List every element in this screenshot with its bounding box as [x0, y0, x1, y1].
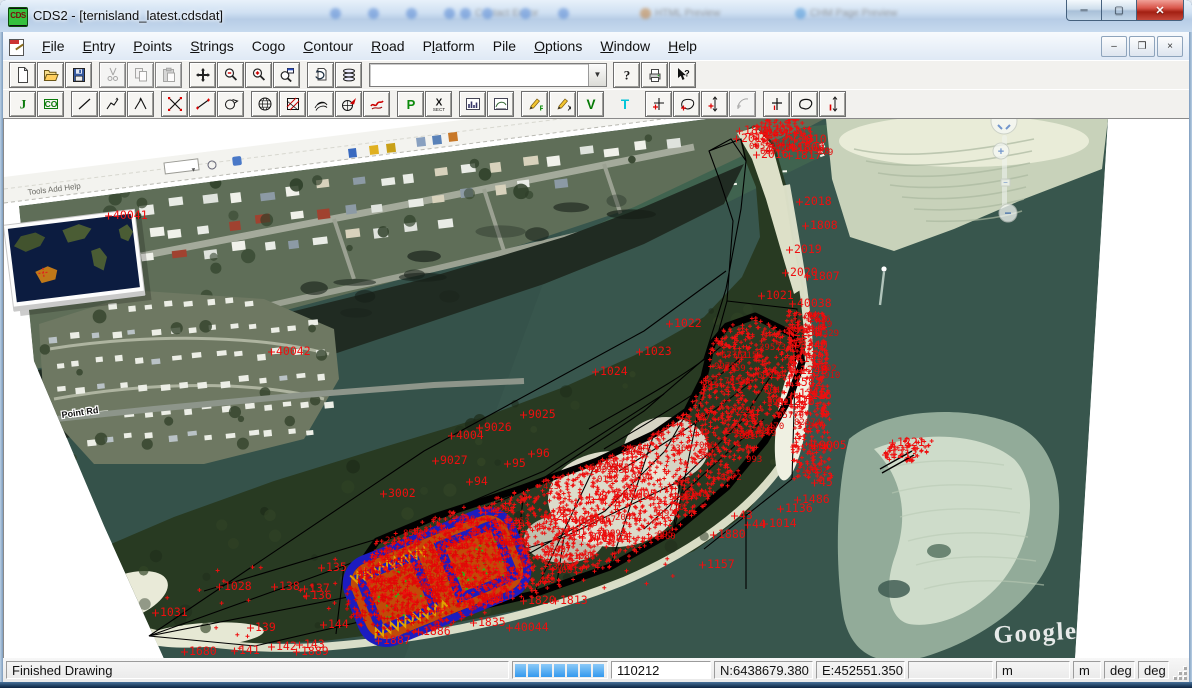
zoom-window-icon [279, 67, 295, 83]
svg-text:0572: 0572 [720, 473, 742, 483]
resize-grip[interactable] [1171, 664, 1189, 682]
new-icon [15, 67, 31, 83]
svg-text:68056: 68056 [757, 371, 784, 381]
svg-text:CO: CO [44, 99, 57, 109]
survey-point-label: 1024 [600, 364, 628, 378]
mdi-minimize-button[interactable]: – [1101, 36, 1127, 57]
survey-point-label: 1023 [644, 344, 672, 358]
svg-text:−: − [1003, 178, 1008, 187]
svg-text:23667: 23667 [670, 444, 697, 454]
survey-point-label: 2011 [772, 123, 800, 137]
x-sect-icon: XSECT [431, 96, 447, 112]
survey-point-label: 1880 [718, 527, 746, 541]
app-icon: CDS [8, 7, 28, 27]
unit-panel-m: m [1073, 661, 1101, 679]
status-message: Finished Drawing [6, 661, 509, 679]
aerial-imagery: Google ™Point Rd + − − [19, 119, 1108, 659]
freehand-icon [369, 96, 385, 112]
survey-point-label: 1835 [478, 615, 506, 629]
t-cyan-icon: T [617, 96, 633, 112]
pt-vert-icon [707, 96, 723, 112]
google-watermark: Google [993, 618, 1078, 649]
survey-point-label: 3002 [388, 486, 416, 500]
menu-points[interactable]: Points [124, 34, 181, 58]
svg-text:J: J [19, 96, 26, 111]
svg-text:57697: 57697 [597, 460, 624, 470]
polyline-icon [105, 96, 121, 112]
menu-items: FileEntryPointsStringsCogoContourRoadPla… [33, 34, 706, 58]
progress-segment [515, 664, 526, 677]
help-icon: ? [619, 67, 635, 83]
survey-point-label: 1889 [301, 644, 329, 658]
northing-readout: N:6438679.380 [714, 661, 813, 679]
survey-point-label: 1022 [674, 316, 702, 330]
circle-arrow-button[interactable] [217, 91, 244, 117]
survey-point-label: 94 [474, 474, 488, 488]
menu-window[interactable]: Window [591, 34, 659, 58]
vert2-icon [825, 96, 841, 112]
svg-text:804: 804 [764, 386, 780, 396]
survey-point-label: 1216 [787, 394, 815, 408]
svg-text:3215: 3215 [373, 549, 395, 559]
zoom-out-icon [223, 67, 239, 83]
svg-text:11086: 11086 [568, 552, 595, 562]
pt-balloon-button[interactable] [673, 91, 700, 117]
zoom-window-button[interactable] [273, 62, 300, 88]
window-bottom-border [0, 682, 1192, 688]
svg-text:78554: 78554 [724, 377, 751, 387]
survey-point-label: 2018 [804, 194, 832, 208]
cogo-co-button[interactable]: CO [37, 91, 64, 117]
layer-combobox[interactable]: ▼ [369, 63, 607, 87]
unit-panel-deg-1: deg [1104, 661, 1135, 679]
svg-text:+: + [998, 146, 1004, 158]
scatter-x-button[interactable] [161, 91, 188, 117]
survey-point-label: 144 [328, 617, 349, 631]
poly2-icon [797, 96, 813, 112]
menu-pile[interactable]: Pile [484, 34, 525, 58]
svg-text:2948: 2948 [686, 490, 708, 500]
survey-point-label: 40042 [276, 344, 311, 358]
survey-point-label: 1014 [769, 516, 797, 530]
save-button[interactable] [65, 62, 92, 88]
survey-point-label: 136 [311, 588, 332, 602]
svg-text:4829: 4829 [488, 506, 510, 516]
survey-point-label: 139 [255, 620, 276, 634]
svg-text:9012: 9012 [461, 581, 483, 591]
svg-text:247: 247 [396, 564, 412, 574]
menu-strings[interactable]: Strings [181, 34, 243, 58]
survey-point-label: 3340 [800, 338, 828, 352]
svg-text:5992: 5992 [653, 509, 675, 519]
p-green-icon: P [403, 96, 419, 112]
survey-point-label: 1886 [423, 624, 451, 638]
poly2-button[interactable] [791, 91, 818, 117]
svg-text:242: 242 [726, 427, 742, 437]
progress-segment [593, 664, 604, 677]
survey-point-label: 135 [326, 560, 347, 574]
svg-text:835: 835 [438, 575, 454, 585]
context-help-icon: ? [675, 67, 691, 83]
globe-arrow-button[interactable] [335, 91, 362, 117]
menu-help[interactable]: Help [659, 34, 706, 58]
survey-point-label: 141 [239, 643, 260, 657]
save-icon [71, 67, 87, 83]
svg-text:9973: 9973 [714, 362, 736, 372]
svg-text:6704: 6704 [393, 604, 415, 614]
svg-text:854: 854 [403, 529, 419, 539]
svg-text:X: X [567, 103, 570, 112]
paste-button[interactable] [155, 62, 182, 88]
new-button[interactable] [9, 62, 36, 88]
svg-text:082: 082 [804, 312, 820, 322]
survey-point-label: 58 [594, 489, 608, 503]
chart-icon [465, 96, 481, 112]
svg-text:072: 072 [700, 412, 716, 422]
help-button[interactable]: ? [613, 62, 640, 88]
layers-icon [341, 67, 357, 83]
pan-icon [195, 67, 211, 83]
progress-segment [580, 664, 591, 677]
svg-text:P: P [406, 97, 415, 112]
section-icon [493, 96, 509, 112]
pt-vert-button[interactable] [701, 91, 728, 117]
progress-segment [528, 664, 539, 677]
point-id-field[interactable]: 110212 [611, 661, 711, 679]
copy-icon [133, 67, 149, 83]
survey-point-label: 40038 [797, 296, 832, 310]
globe-button[interactable] [251, 91, 278, 117]
menu-file[interactable]: File [33, 34, 74, 58]
survey-point-label: 45 [819, 475, 833, 489]
progress-segment [541, 664, 552, 677]
survey-point-label: 1820 [528, 593, 556, 607]
easting-readout: E:452551.350 [816, 661, 905, 679]
x-sect-button[interactable]: XSECT [425, 91, 452, 117]
zoom-in-icon [251, 67, 267, 83]
svg-text:318: 318 [797, 422, 813, 432]
survey-point-label: 1817 [794, 148, 822, 162]
edit-x-button[interactable]: X [549, 91, 576, 117]
title-bar[interactable]: Contact Editor HTML Preview CHM Page Pre… [0, 0, 1192, 32]
xline-icon [133, 96, 149, 112]
p-green-button[interactable]: P [397, 91, 424, 117]
survey-point-label: 2019 [794, 242, 822, 256]
survey-point-label: 9027 [440, 453, 468, 467]
cad-toolbar: JCOPXSECTPXVT [3, 89, 1189, 119]
svg-text:V: V [586, 97, 595, 112]
cut-icon [105, 67, 121, 83]
svg-text:9894: 9894 [631, 473, 653, 483]
svg-text:20444: 20444 [615, 513, 642, 523]
globe-icon [257, 96, 273, 112]
scatter-x-icon [167, 96, 183, 112]
menu-bar: FileEntryPointsStringsCogoContourRoadPla… [3, 32, 1189, 61]
pt-arc-button[interactable] [729, 91, 756, 117]
svg-text:67761: 67761 [721, 351, 748, 361]
zoom-in-button[interactable] [245, 62, 272, 88]
svg-text:341: 341 [698, 452, 714, 462]
hatch-button[interactable] [279, 91, 306, 117]
svg-text:10813: 10813 [556, 566, 583, 576]
survey-point-label: 1028 [224, 579, 252, 593]
line-icon [77, 96, 93, 112]
open-icon [43, 67, 59, 83]
ghost-taskbar-item: HTML Preview [640, 5, 720, 21]
main-toolbar: ▼?? [3, 60, 1189, 90]
contours-icon [313, 96, 329, 112]
svg-text:149: 149 [760, 429, 776, 439]
svg-text:7395: 7395 [737, 414, 759, 424]
svg-text:3578: 3578 [424, 585, 446, 595]
svg-text:P: P [539, 103, 542, 112]
survey-point-label: 1031 [160, 605, 188, 619]
xline-button[interactable] [127, 91, 154, 117]
polyline-button[interactable] [99, 91, 126, 117]
cogo-co-icon: CO [43, 96, 59, 112]
print-icon [647, 67, 663, 83]
globe-arrow-icon [341, 96, 357, 112]
print-button[interactable] [641, 62, 668, 88]
pt-balloon-icon [679, 96, 695, 112]
survey-point-label: 1005 [587, 530, 615, 544]
svg-text:SECT: SECT [432, 107, 444, 112]
menu-contour[interactable]: Contour [294, 34, 362, 58]
svg-text:64304: 64304 [372, 585, 399, 595]
blank-panel [908, 661, 993, 679]
v-green-icon: V [583, 96, 599, 112]
svg-text:835: 835 [440, 537, 456, 547]
drawing-canvas[interactable]: Google ™Point Rd + − − Tools Add Help ▾ [3, 118, 1190, 659]
svg-text:777: 777 [658, 486, 674, 496]
survey-point-label: 1136 [785, 501, 813, 515]
ghost-icon [640, 8, 651, 19]
survey-point-label: 40036 [571, 513, 606, 527]
cross2-button[interactable] [763, 91, 790, 117]
edit-p-icon: P [527, 96, 543, 112]
close-button[interactable]: ✕ [1136, 0, 1184, 21]
pt-cross-icon [651, 96, 667, 112]
svg-text:39523: 39523 [759, 343, 786, 353]
survey-point-label: 60005 [622, 487, 657, 501]
t-cyan-button[interactable]: T [611, 91, 638, 117]
menu-entry[interactable]: Entry [74, 34, 125, 58]
section-button[interactable] [487, 91, 514, 117]
svg-text:952: 952 [428, 559, 444, 569]
status-bar: Finished Drawing 110212 N:6438679.380 E:… [3, 658, 1189, 682]
overview-map-inset [4, 209, 152, 317]
tape-button[interactable] [189, 91, 216, 117]
svg-text:2360: 2360 [654, 532, 676, 542]
join-j-icon: J [15, 96, 31, 112]
pt-arc-icon [735, 96, 751, 112]
progress-segment [554, 664, 565, 677]
survey-point-label: 9025 [528, 407, 556, 421]
zoom-out-button[interactable] [217, 62, 244, 88]
menu-road[interactable]: Road [362, 34, 413, 58]
window-title: CDS2 - [ternisland_latest.cdsdat] [33, 8, 223, 23]
join-j-button[interactable]: J [9, 91, 36, 117]
vert2-button[interactable] [819, 91, 846, 117]
survey-point-label: 2236 [794, 325, 822, 339]
copy-button[interactable] [127, 62, 154, 88]
edit-p-button[interactable]: P [521, 91, 548, 117]
progress-bar [512, 661, 608, 679]
redraw-button[interactable] [307, 62, 334, 88]
menu-cogo[interactable]: Cogo [243, 34, 295, 58]
ghost-taskbar-item: CHM Page Preview [795, 5, 897, 21]
survey-point-label: 43 [739, 508, 753, 522]
survey-point-label: 1213 [890, 447, 918, 461]
survey-point-label: 1021 [766, 288, 794, 302]
line-button[interactable] [71, 91, 98, 117]
open-button[interactable] [37, 62, 64, 88]
layer-combo-input[interactable] [370, 64, 588, 86]
svg-text:628: 628 [459, 515, 475, 525]
circle-arrow-icon [223, 96, 239, 112]
survey-point-label: 62 [549, 509, 563, 523]
svg-text:50888: 50888 [494, 538, 521, 548]
survey-point-label: 1808 [810, 218, 838, 232]
survey-point-label: 9005 [819, 438, 847, 452]
mdi-close-button[interactable]: × [1157, 36, 1183, 57]
survey-point-label: 95 [512, 456, 526, 470]
maximize-button[interactable]: ▢ [1102, 0, 1136, 21]
survey-point-label: 1813 [560, 593, 588, 607]
survey-point-label: 40044 [514, 620, 549, 634]
survey-point-label: 2015 [741, 131, 769, 145]
ghost-icon [795, 8, 806, 19]
progress-segment [567, 664, 578, 677]
redraw-icon [313, 67, 329, 83]
app-window: Contact Editor HTML Preview CHM Page Pre… [0, 0, 1192, 688]
survey-point-label: 138 [279, 579, 300, 593]
minimize-button[interactable]: ─ [1066, 0, 1102, 21]
svg-text:425: 425 [543, 482, 559, 492]
v-green-button[interactable]: V [577, 91, 604, 117]
svg-text:?: ? [623, 67, 630, 82]
svg-text:97027: 97027 [544, 545, 571, 555]
svg-text:0152: 0152 [597, 475, 619, 485]
menu-platform[interactable]: Platform [414, 34, 484, 58]
survey-point-label: 9026 [484, 420, 512, 434]
pan-button[interactable] [189, 62, 216, 88]
survey-point-label: 1157 [707, 557, 735, 571]
context-help-button[interactable]: ? [669, 62, 696, 88]
hatch-icon [285, 96, 301, 112]
svg-text:221: 221 [385, 536, 401, 546]
svg-text:562: 562 [702, 378, 718, 388]
survey-point-label: 1807 [812, 269, 840, 283]
unit-panel-m-long: m [996, 661, 1070, 679]
svg-text:?: ? [684, 68, 690, 78]
pt-cross-button[interactable] [645, 91, 672, 117]
svg-text:2279: 2279 [621, 445, 643, 455]
edit-x-icon: X [555, 96, 571, 112]
survey-point-label: 1887 [383, 633, 411, 647]
svg-text:119: 119 [405, 575, 421, 585]
svg-text:0639: 0639 [482, 596, 504, 606]
document-icon[interactable] [7, 36, 27, 56]
svg-text:−: − [1004, 206, 1011, 220]
combo-dropdown-arrow[interactable]: ▼ [588, 64, 606, 86]
svg-text:993: 993 [746, 455, 762, 465]
layers-button[interactable] [335, 62, 362, 88]
svg-text:7519: 7519 [444, 563, 466, 573]
mdi-restore-button[interactable]: ❐ [1129, 36, 1155, 57]
survey-point-label: 142 [276, 639, 297, 653]
survey-point-label: 40041 [113, 208, 148, 222]
survey-point-label: 96 [536, 446, 550, 460]
svg-text:459: 459 [539, 576, 555, 586]
tape-icon [195, 96, 211, 112]
chart-button[interactable] [459, 91, 486, 117]
window-left-border [0, 32, 3, 682]
survey-point-label: 1680 [189, 644, 217, 658]
contours-button[interactable] [307, 91, 334, 117]
svg-text:2153: 2153 [508, 517, 530, 527]
svg-text:046: 046 [699, 441, 715, 451]
menu-options[interactable]: Options [525, 34, 591, 58]
paste-icon [161, 67, 177, 83]
ghost-icon [460, 8, 471, 19]
cross2-icon [769, 96, 785, 112]
svg-text:T: T [620, 97, 629, 112]
freehand-button[interactable] [363, 91, 390, 117]
cut-button[interactable] [99, 62, 126, 88]
unit-panel-deg-2: deg [1138, 661, 1169, 679]
survey-point-label: 2016 [761, 147, 789, 161]
